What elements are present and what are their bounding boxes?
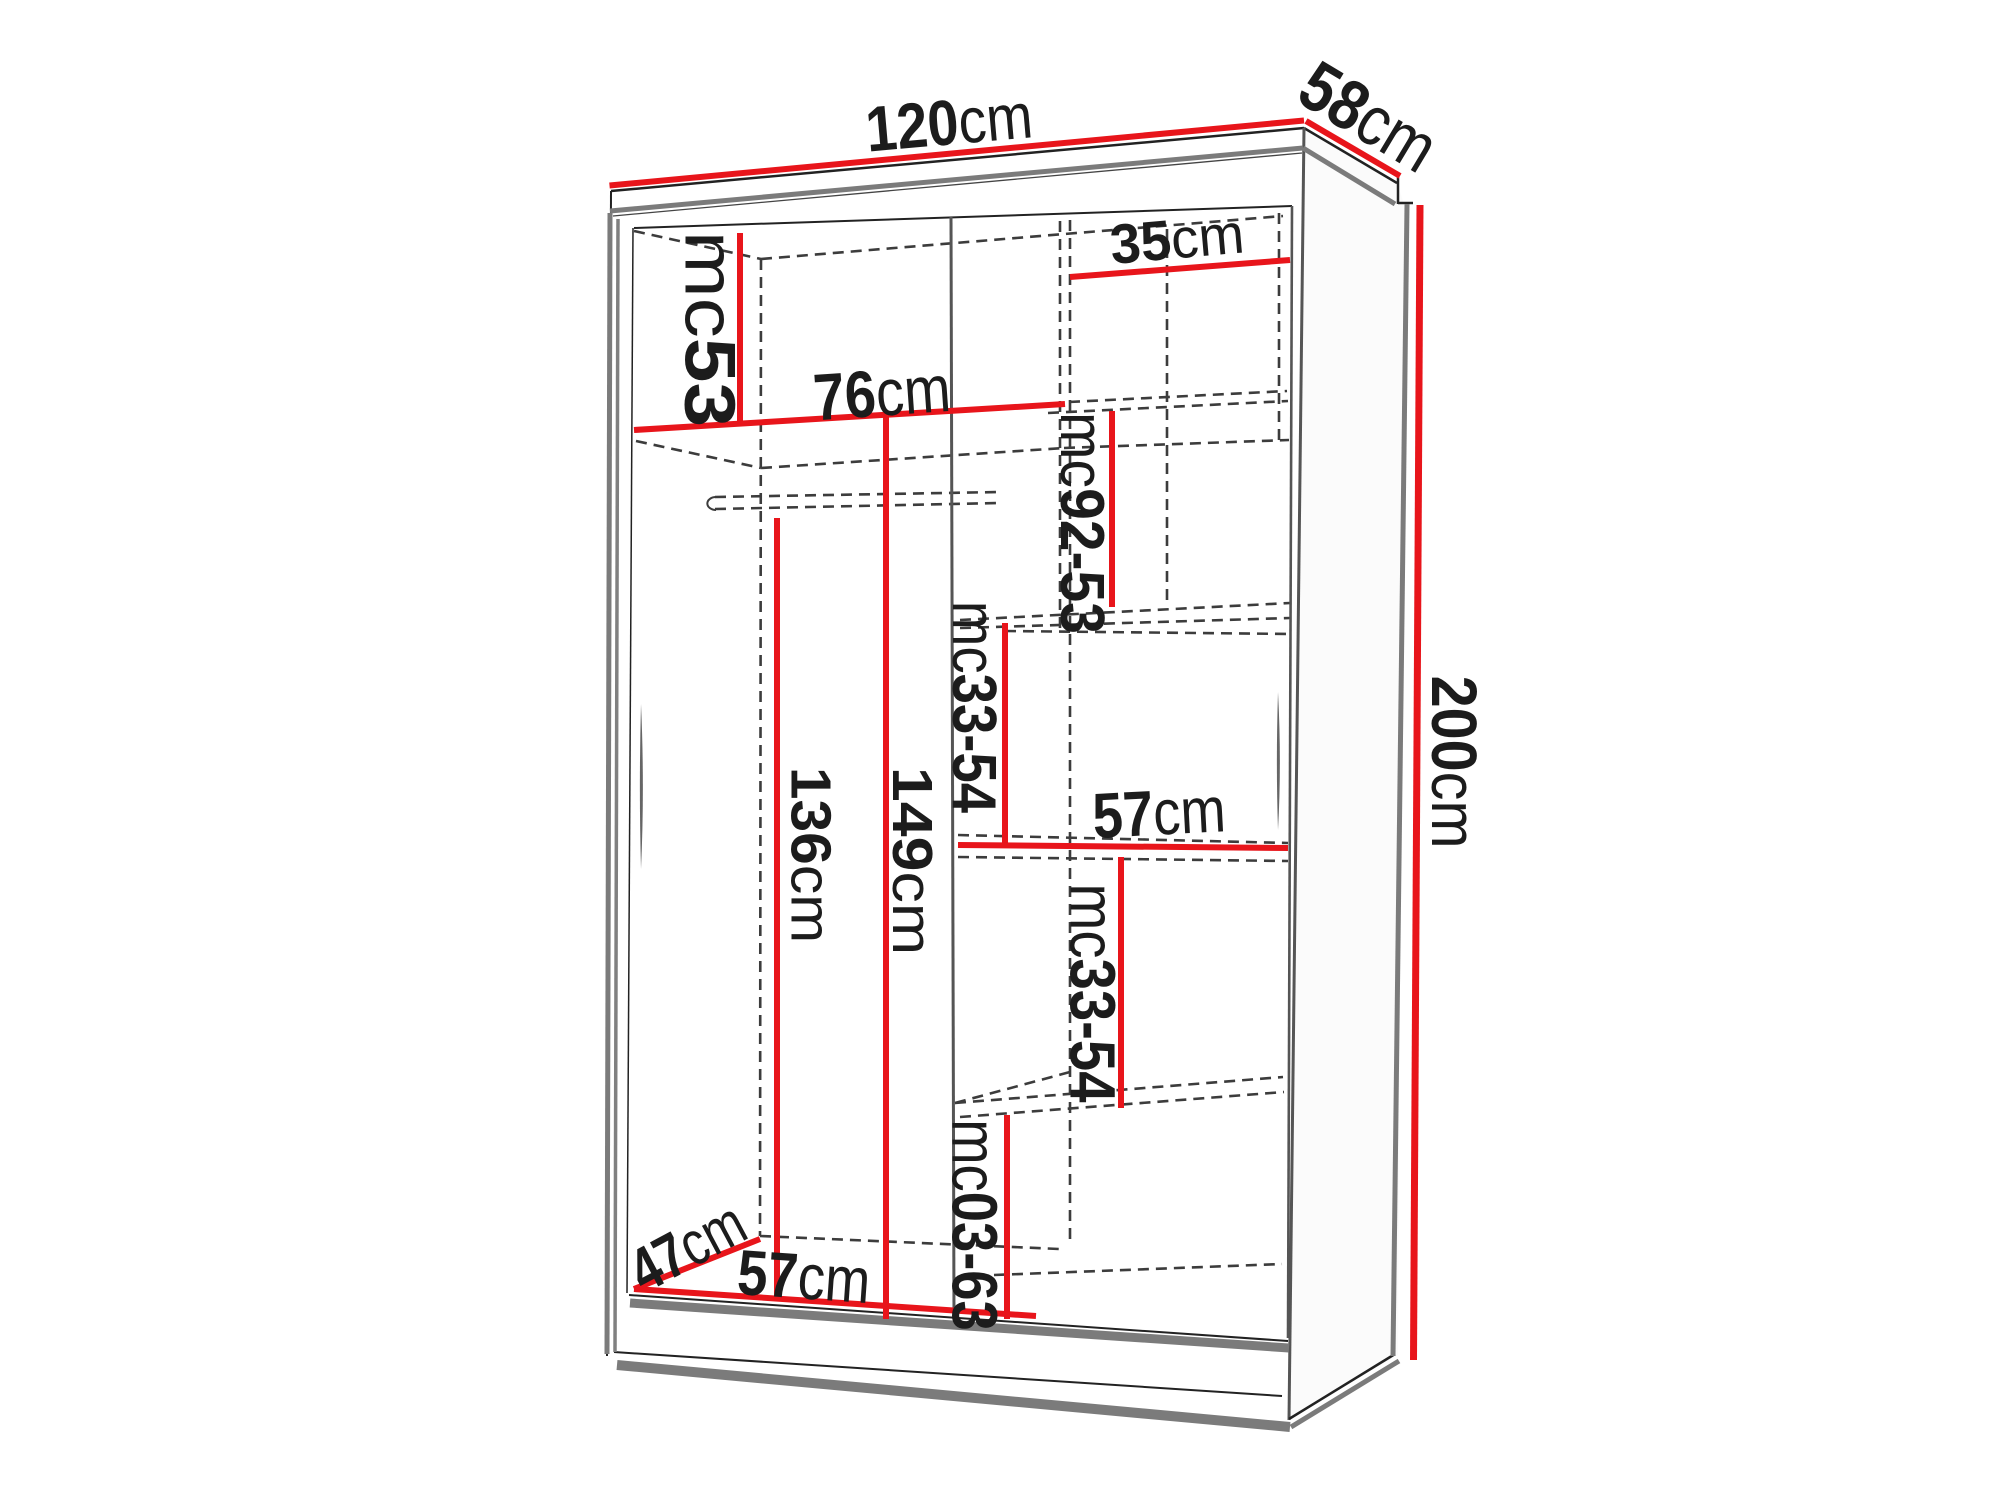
svg-text:mc92-53: mc92-53 bbox=[1048, 412, 1118, 634]
svg-text:mc03-63: mc03-63 bbox=[939, 1119, 1011, 1331]
svg-text:35cm: 35cm bbox=[1107, 202, 1246, 276]
svg-text:149cm: 149cm bbox=[881, 767, 945, 955]
svg-text:57cm: 57cm bbox=[1091, 772, 1228, 851]
svg-text:mc53: mc53 bbox=[670, 231, 750, 427]
svg-text:mc33-54: mc33-54 bbox=[1057, 883, 1129, 1103]
svg-text:mc33-54: mc33-54 bbox=[939, 601, 1008, 814]
svg-text:136cm: 136cm bbox=[778, 767, 841, 943]
svg-text:76cm: 76cm bbox=[811, 352, 953, 435]
svg-text:200cm: 200cm bbox=[1418, 676, 1489, 849]
svg-text:120cm: 120cm bbox=[863, 79, 1036, 165]
